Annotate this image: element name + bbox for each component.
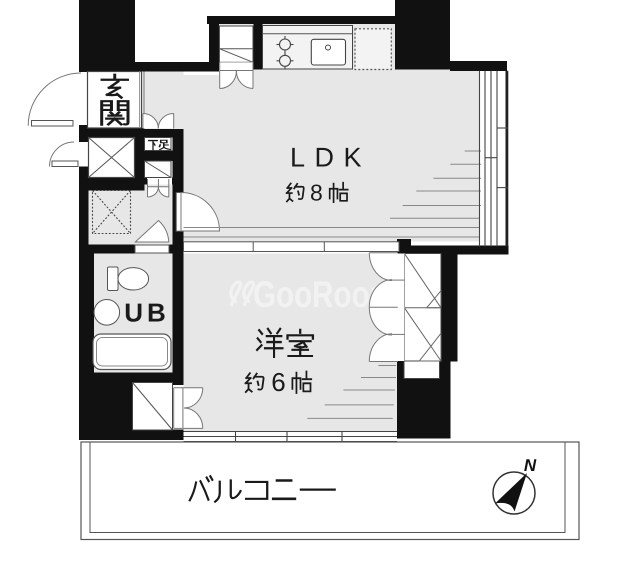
- svg-text:UB: UB: [124, 298, 170, 328]
- svg-text:N: N: [524, 456, 537, 475]
- svg-text:8: 8: [310, 180, 323, 206]
- svg-text:LDK: LDK: [290, 142, 371, 172]
- svg-text:6: 6: [271, 367, 285, 397]
